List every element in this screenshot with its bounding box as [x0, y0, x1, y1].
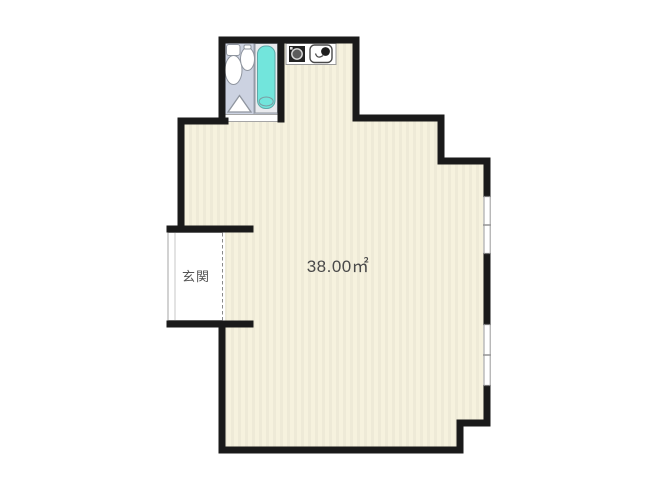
room-area-label: 38.00㎡	[307, 257, 370, 276]
bathroom-door	[225, 115, 278, 122]
toilet-icon	[225, 45, 242, 85]
washing-machine-icon	[289, 46, 305, 62]
bathtub-icon	[255, 44, 278, 114]
floor-plan-canvas: 38.00㎡ 玄関	[0, 0, 667, 500]
window-upper	[483, 196, 491, 254]
window-lower	[483, 324, 491, 386]
stove-icon	[310, 45, 332, 63]
entrance-label: 玄関	[182, 269, 210, 284]
floor-plan-drawing: 38.00㎡ 玄関	[0, 0, 667, 500]
